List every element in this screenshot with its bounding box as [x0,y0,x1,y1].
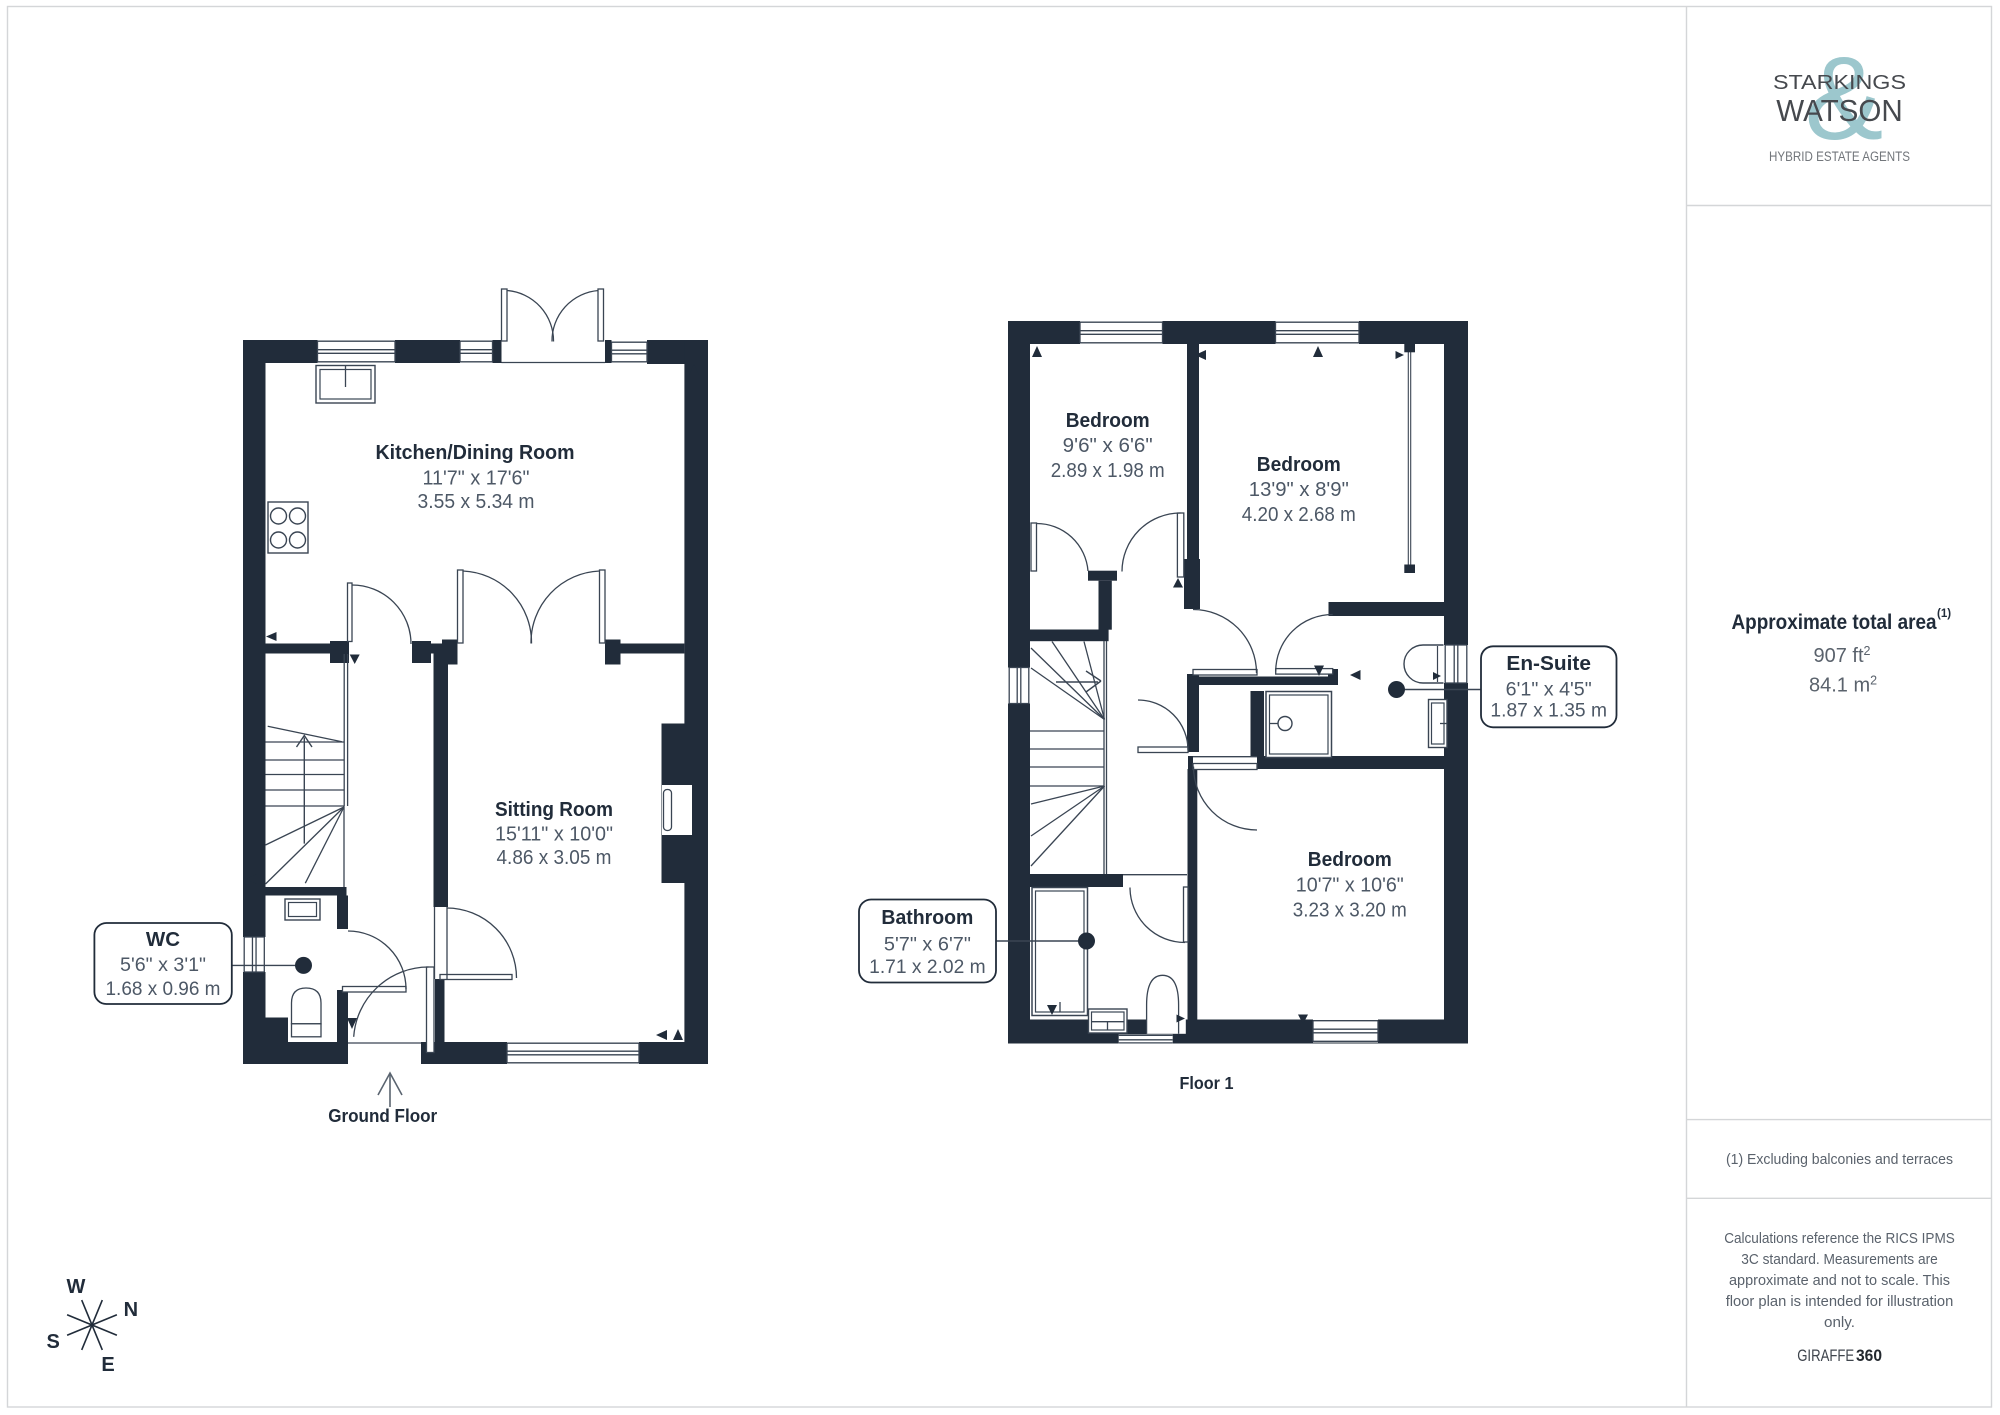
svg-text:floor plan is intended for ill: floor plan is intended for illustration [1726,1293,1954,1310]
svg-text:E: E [101,1354,114,1376]
svg-text:13'9" x 8'9": 13'9" x 8'9" [1249,479,1349,501]
svg-text:2.89 x 1.98 m: 2.89 x 1.98 m [1051,460,1165,482]
svg-text:S: S [47,1331,60,1353]
svg-text:(1): (1) [1937,608,1951,620]
svg-text:En-Suite: En-Suite [1506,652,1591,675]
svg-text:3.55 x 5.34 m: 3.55 x 5.34 m [418,491,535,513]
svg-text:9'6" x 6'6": 9'6" x 6'6" [1063,435,1153,457]
svg-text:Approximate total area: Approximate total area [1732,611,1937,634]
svg-text:1.71 x 2.02 m: 1.71 x 2.02 m [869,956,986,978]
svg-text:3C standard. Measurements are: 3C standard. Measurements are [1741,1251,1938,1268]
svg-text:907 ft2: 907 ft2 [1814,644,1871,667]
svg-text:4.86 x 3.05 m: 4.86 x 3.05 m [497,847,612,869]
svg-text:Bedroom: Bedroom [1066,409,1150,432]
svg-text:Calculations reference the RIC: Calculations reference the RICS IPMS [1724,1230,1955,1247]
svg-text:N: N [124,1299,138,1321]
svg-text:(1) Excluding balconies and te: (1) Excluding balconies and terraces [1726,1151,1953,1168]
svg-text:only.: only. [1824,1314,1855,1331]
svg-text:360: 360 [1856,1346,1882,1365]
svg-text:3.23 x 3.20 m: 3.23 x 3.20 m [1293,900,1407,922]
svg-text:HYBRID ESTATE AGENTS: HYBRID ESTATE AGENTS [1769,149,1910,164]
svg-text:5'6" x 3'1": 5'6" x 3'1" [120,954,206,976]
svg-text:11'7" x 17'6": 11'7" x 17'6" [423,467,530,489]
svg-text:WC: WC [146,928,180,951]
svg-text:4.20 x 2.68 m: 4.20 x 2.68 m [1242,504,1356,526]
svg-text:approximate and not to scale.: approximate and not to scale. This [1729,1272,1950,1289]
svg-text:Bedroom: Bedroom [1308,848,1392,871]
svg-text:Bedroom: Bedroom [1257,453,1341,476]
svg-text:W: W [66,1276,85,1298]
svg-text:84.1 m2: 84.1 m2 [1809,674,1877,697]
svg-text:1.68 x 0.96 m: 1.68 x 0.96 m [106,978,221,1000]
svg-text:6'1" x 4'5": 6'1" x 4'5" [1506,679,1592,701]
svg-text:Sitting Room: Sitting Room [495,798,613,821]
svg-text:Kitchen/Dining Room: Kitchen/Dining Room [376,441,575,464]
svg-text:GIRAFFE: GIRAFFE [1797,1346,1854,1365]
svg-text:Ground Floor: Ground Floor [328,1105,437,1126]
svg-text:5'7" x 6'7": 5'7" x 6'7" [884,934,971,956]
svg-text:1.87 x 1.35 m: 1.87 x 1.35 m [1490,700,1607,722]
svg-text:10'7" x 10'6": 10'7" x 10'6" [1296,875,1404,897]
svg-text:15'11" x 10'0": 15'11" x 10'0" [495,823,613,845]
svg-text:WATSON: WATSON [1776,94,1903,128]
svg-text:STARKINGS: STARKINGS [1773,71,1906,94]
svg-text:Floor 1: Floor 1 [1180,1073,1234,1093]
svg-text:Bathroom: Bathroom [881,906,973,929]
